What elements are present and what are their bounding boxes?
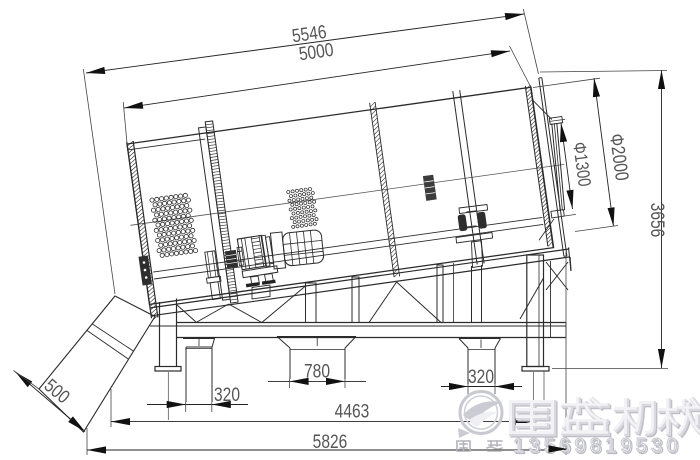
svg-text:320: 320 <box>214 384 240 406</box>
svg-text:3656: 3656 <box>647 203 669 238</box>
svg-text:Φ2000: Φ2000 <box>606 132 634 182</box>
svg-text:4463: 4463 <box>335 400 370 422</box>
svg-text:5000: 5000 <box>297 38 334 64</box>
svg-text:500: 500 <box>40 374 74 407</box>
svg-text:320: 320 <box>468 366 494 388</box>
svg-text:780: 780 <box>304 360 330 382</box>
svg-text:13569819530: 13569819530 <box>513 435 682 457</box>
svg-text:Φ1300: Φ1300 <box>569 141 594 188</box>
svg-text:5826: 5826 <box>313 431 348 453</box>
